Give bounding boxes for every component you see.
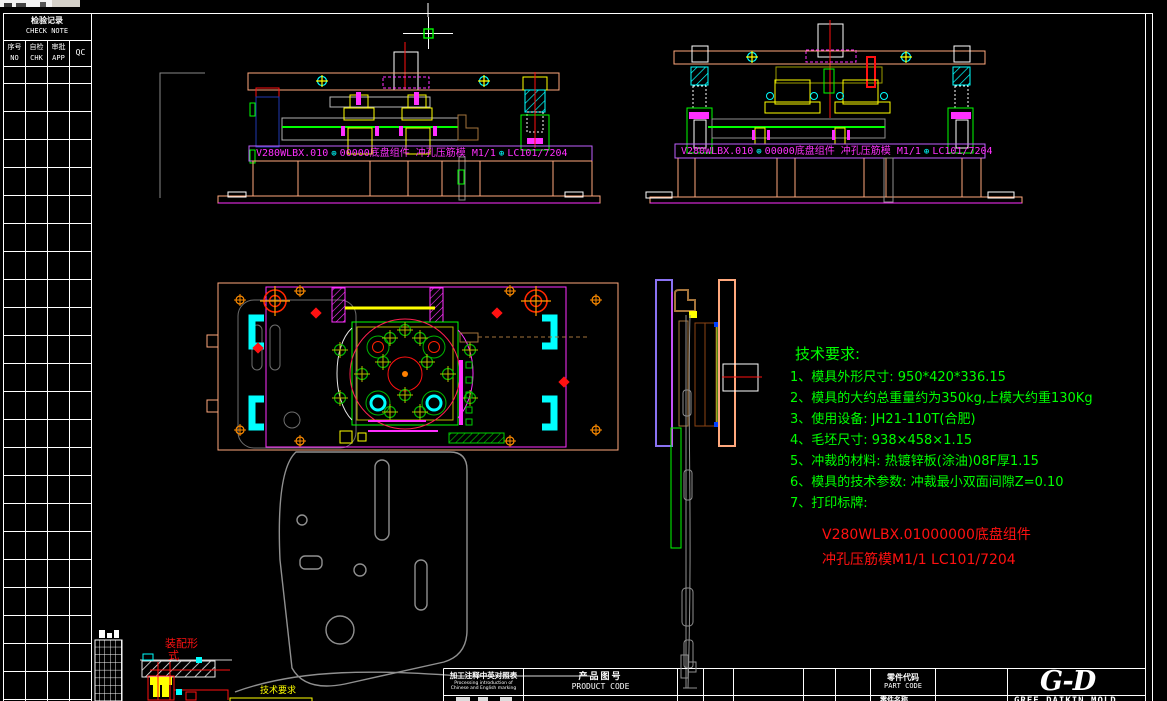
section-view	[656, 280, 762, 688]
cad-drawing-canvas	[0, 0, 1167, 701]
datum-symbol-icon: ⊕	[921, 147, 932, 157]
datum-symbol-icon: ⊕	[328, 149, 339, 159]
titleblock-product-code-cell: 产品图号 PRODUCT CODE	[524, 668, 677, 695]
crosshair-cursor	[403, 17, 453, 49]
tech-req-small-label: 技术要求	[260, 686, 296, 696]
sheet-frame	[4, 14, 1153, 701]
gd-logo: G-D	[1040, 666, 1095, 697]
part-name-label-cn: 零件名称	[880, 696, 908, 701]
nameplate-assembly: 00000底盘组件 冲孔压筋模 M1/1	[765, 146, 921, 158]
tech-requirements-list: 1、模具外形尺寸: 950*420*336.15 2、模具的大约总重量约为350…	[790, 371, 1093, 518]
tech-requirements-title: 技术要求:	[795, 346, 860, 363]
translation-table-label-cn: 加工注释中英对照表	[450, 672, 518, 681]
check-table-col-no-en: NO	[4, 54, 25, 62]
cad-application-screen: 检验记录 CHECK NOTE 序号 NO 自检 CHK 审批 APP QC V…	[0, 0, 1167, 701]
tech-requirement-item: 5、冲裁的材料: 热镀锌板(涂油)08F厚1.15	[790, 455, 1093, 476]
titleblock-part-code-cell: 零件代码 PART CODE	[871, 668, 935, 695]
nameplate-code: V280WLBX.010	[681, 146, 753, 158]
nameplate-tail: LC101/7204	[507, 148, 567, 160]
check-table-col-app-en: APP	[48, 54, 69, 62]
tech-requirement-item: 3、使用设备: JH21-110T(合肥)	[790, 413, 1093, 434]
check-table-col-chk-en: CHK	[26, 54, 47, 62]
tech-requirement-item: 6、模具的技术参数: 冲裁最小双面间隙Z=0.10	[790, 476, 1093, 497]
check-table-col-chk-cn: 自检	[26, 43, 47, 51]
check-note-table-grid	[4, 41, 92, 701]
check-table-title-en: CHECK NOTE	[4, 27, 90, 35]
tech-requirement-item: 1、模具外形尺寸: 950*420*336.15	[790, 371, 1093, 392]
product-code-label-en: PRODUCT CODE	[572, 682, 630, 691]
print-nameplate-line1: V280WLBX.01000000底盘组件	[822, 527, 1031, 543]
product-code-label-cn: 产品图号	[578, 672, 622, 682]
nameplate-text-side: V280WLBX.010⊕00000底盘组件 冲孔压筋模 M1/1⊕LC101/…	[681, 146, 983, 158]
side-elevation-view	[646, 20, 1022, 203]
plan-view	[207, 283, 618, 450]
assembly-form-label-line2: 式	[168, 650, 179, 663]
nameplate-tail: LC101/7204	[932, 146, 992, 158]
tech-requirement-item: 7、打印标牌:	[790, 497, 1093, 518]
nameplate-code: V280WLBX.010	[256, 148, 328, 160]
titleblock-translation-cell: 加工注释中英对照表 Processing introduction of Chi…	[444, 668, 523, 695]
tech-requirement-item: 2、模具的大约总重量约为350kg,上模大约重130Kg	[790, 392, 1093, 413]
nameplate-text-front: V280WLBX.010⊕00000底盘组件 冲孔压筋模 M1/1⊕LC101/…	[256, 148, 590, 160]
tech-requirement-item: 4、毛坯尺寸: 938×458×1.15	[790, 434, 1093, 455]
nameplate-assembly: 00000底盘组件 冲孔压筋模 M1/1	[340, 148, 496, 160]
check-table-col-no-cn: 序号	[4, 43, 25, 51]
check-table-col-app-cn: 审批	[48, 43, 69, 51]
part-code-label-en: PART CODE	[884, 682, 922, 690]
datum-symbol-icon: ⊕	[496, 149, 507, 159]
gd-logo-subtitle: GREE DAIKIN MOLD	[1014, 696, 1117, 701]
check-table-col-qc: QC	[70, 48, 91, 57]
front-elevation-view	[160, 3, 600, 203]
part-code-label-cn: 零件代码	[887, 673, 919, 682]
print-nameplate-line2: 冲孔压筋模M1/1 LC101/7204	[822, 552, 1016, 568]
part-outline	[235, 452, 590, 692]
translation-table-label-en2: Chinese and English marking	[451, 686, 517, 691]
check-table-title-cn: 检验记录	[4, 16, 90, 25]
datum-symbol-icon: ⊕	[753, 147, 764, 157]
